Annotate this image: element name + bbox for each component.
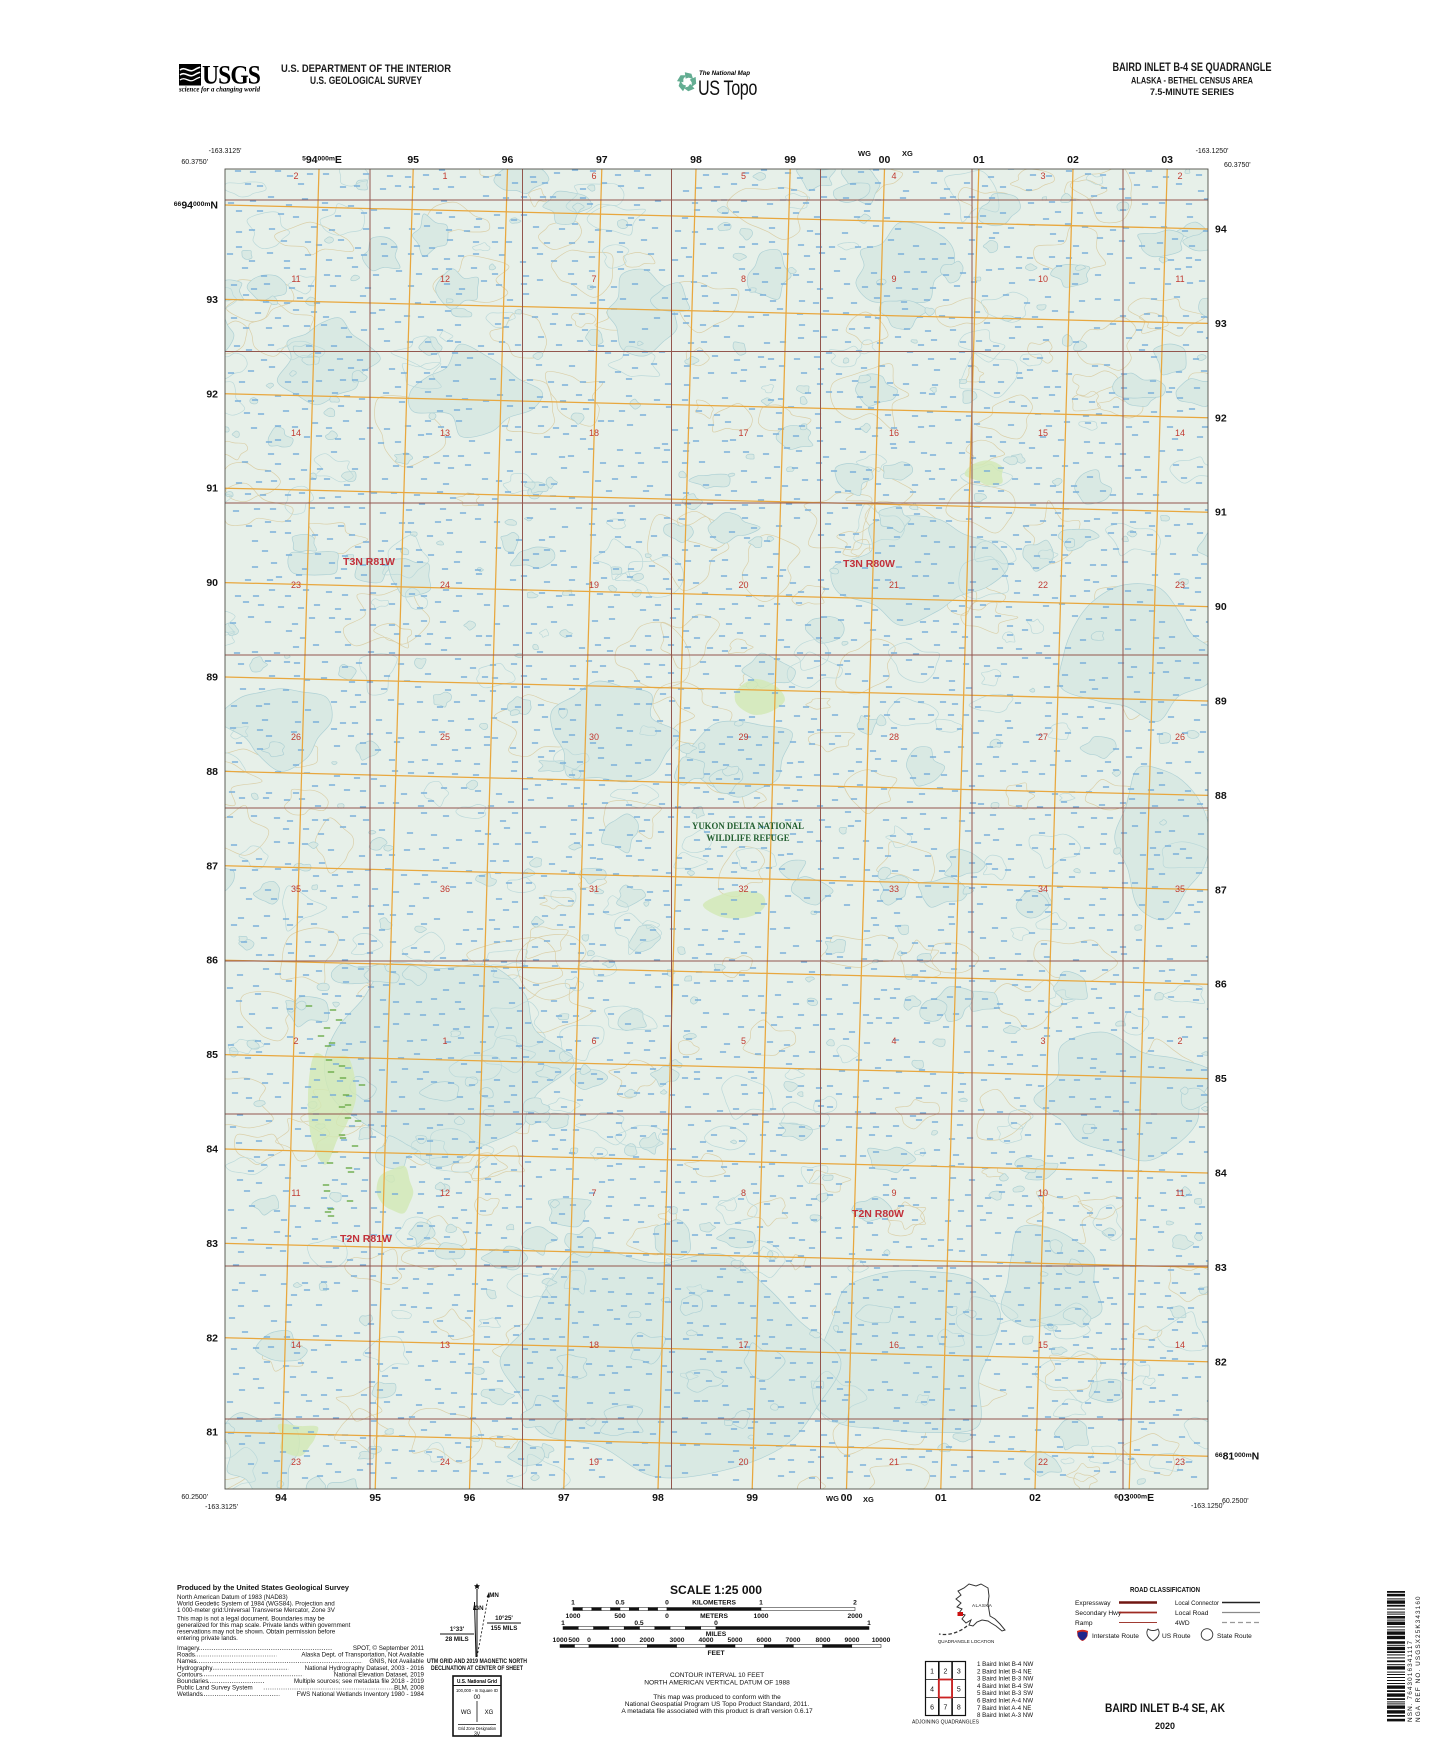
svg-text:XG: XG — [485, 1710, 494, 1716]
svg-text:16: 16 — [889, 1340, 899, 1350]
svg-text:17: 17 — [738, 1340, 748, 1350]
svg-text:31: 31 — [589, 884, 599, 894]
svg-text:36: 36 — [440, 884, 450, 894]
svg-text:97: 97 — [558, 1492, 570, 1504]
svg-text:23: 23 — [1175, 580, 1185, 590]
svg-text:15: 15 — [1038, 1340, 1048, 1350]
svg-text:1 000-meter grid:Universal Tra: 1 000-meter grid:Universal Transverse Me… — [177, 1607, 336, 1614]
svg-text:93: 93 — [1215, 318, 1227, 330]
svg-text:96: 96 — [464, 1492, 476, 1504]
svg-text:90: 90 — [1215, 601, 1227, 613]
svg-text:ROAD CLASSIFICATION: ROAD CLASSIFICATION — [1130, 1585, 1200, 1594]
svg-text:20: 20 — [738, 1457, 748, 1467]
svg-text:2: 2 — [293, 1036, 298, 1046]
svg-text:88: 88 — [206, 766, 218, 778]
svg-text:4: 4 — [891, 171, 896, 181]
svg-text:3V: 3V — [474, 1732, 481, 1738]
svg-text:WG: WG — [826, 1494, 839, 1503]
svg-text:2: 2 — [1177, 171, 1182, 181]
svg-text:81: 81 — [206, 1427, 218, 1439]
svg-text:6: 6 — [930, 1705, 934, 1712]
svg-text:ALASKA - BETHEL CENSUS AREA: ALASKA - BETHEL CENSUS AREA — [1131, 76, 1254, 86]
svg-text:6: 6 — [591, 1036, 596, 1046]
svg-text:98: 98 — [652, 1492, 664, 1504]
svg-text:97: 97 — [596, 154, 608, 166]
svg-text:16: 16 — [889, 428, 899, 438]
svg-text:-163.1250': -163.1250' — [1196, 148, 1229, 155]
svg-text:US Route: US Route — [1162, 1633, 1191, 1640]
svg-text:0: 0 — [587, 1637, 591, 1644]
svg-text:8 Baird Inlet A-3 NW: 8 Baird Inlet A-3 NW — [977, 1712, 1033, 1719]
svg-text:2000: 2000 — [640, 1637, 655, 1644]
svg-text:85: 85 — [1215, 1073, 1227, 1085]
svg-text:500: 500 — [568, 1637, 579, 1644]
svg-text:7000: 7000 — [786, 1637, 801, 1644]
svg-text:15: 15 — [1038, 428, 1048, 438]
svg-text:Secondary Hwy: Secondary Hwy — [1075, 1610, 1122, 1617]
svg-text:2020: 2020 — [1155, 1721, 1175, 1731]
svg-text:13: 13 — [440, 1340, 450, 1350]
svg-text:95: 95 — [407, 154, 419, 166]
svg-text:DECLINATION AT CENTER OF SHEET: DECLINATION AT CENTER OF SHEET — [431, 1665, 523, 1672]
svg-text:14: 14 — [291, 1340, 301, 1350]
svg-text:100,000 - m Square ID: 100,000 - m Square ID — [456, 1688, 498, 1694]
svg-text:98: 98 — [690, 154, 702, 166]
svg-text:19: 19 — [589, 580, 599, 590]
svg-text:14: 14 — [291, 428, 301, 438]
svg-text:1: 1 — [561, 1620, 565, 1627]
svg-text:00: 00 — [474, 1695, 481, 1701]
svg-text:YUKON DELTA NATIONAL: YUKON DELTA NATIONAL — [692, 822, 804, 832]
svg-text:6: 6 — [591, 171, 596, 181]
svg-text:91: 91 — [206, 483, 218, 495]
svg-text:84: 84 — [206, 1144, 218, 1156]
svg-text:82: 82 — [1215, 1356, 1227, 1368]
svg-text:34: 34 — [1038, 884, 1048, 894]
svg-text:2: 2 — [1177, 1036, 1182, 1046]
svg-text:03: 03 — [1161, 154, 1173, 166]
svg-text:01: 01 — [973, 154, 985, 166]
svg-text:8: 8 — [741, 1188, 746, 1198]
svg-text:-163.3125': -163.3125' — [205, 1504, 238, 1511]
svg-text:26: 26 — [291, 732, 301, 742]
svg-text:7.5-MINUTE SERIES: 7.5-MINUTE SERIES — [1150, 87, 1234, 97]
svg-text:9000: 9000 — [845, 1637, 860, 1644]
svg-text:WG: WG — [461, 1710, 472, 1716]
svg-text:8: 8 — [957, 1705, 961, 1712]
svg-text:12: 12 — [440, 274, 450, 284]
svg-text:13: 13 — [440, 428, 450, 438]
svg-text:5: 5 — [741, 1036, 746, 1046]
svg-text:0: 0 — [665, 1613, 669, 1620]
svg-text:WG: WG — [858, 149, 871, 158]
svg-text:14: 14 — [1175, 1340, 1185, 1350]
svg-text:23: 23 — [1175, 1457, 1185, 1467]
svg-text:11: 11 — [291, 274, 300, 284]
svg-text:Local Road: Local Road — [1175, 1610, 1209, 1617]
svg-text:T2N R80W: T2N R80W — [852, 1208, 904, 1220]
svg-text:84: 84 — [1215, 1168, 1227, 1180]
svg-text:WILDLIFE REFUGE: WILDLIFE REFUGE — [707, 834, 790, 844]
svg-text:7: 7 — [591, 274, 596, 284]
svg-text:ALASKA: ALASKA — [972, 1603, 993, 1608]
svg-text:8000: 8000 — [816, 1637, 831, 1644]
svg-text:1: 1 — [442, 1036, 447, 1046]
svg-text:93: 93 — [206, 294, 218, 306]
svg-text:10000: 10000 — [872, 1637, 891, 1644]
svg-text:Interstate Route: Interstate Route — [1092, 1633, 1139, 1640]
svg-text:4: 4 — [891, 1036, 896, 1046]
svg-text:ADJOINING QUADRANGLES: ADJOINING QUADRANGLES — [912, 1720, 980, 1726]
svg-text:1000: 1000 — [611, 1637, 626, 1644]
svg-text:FWS National Wetlands Inven: FWS National Wetlands Inventory 1980 - 1… — [297, 1691, 425, 1698]
svg-text:99: 99 — [784, 154, 796, 166]
svg-text:-163.3125': -163.3125' — [209, 148, 242, 155]
svg-text:U.S. GEOLOGICAL SURVEY: U.S. GEOLOGICAL SURVEY — [310, 75, 423, 87]
svg-text:88: 88 — [1215, 790, 1227, 802]
svg-text:US Topo: US Topo — [698, 76, 757, 100]
svg-text:3: 3 — [1040, 1036, 1045, 1046]
svg-text:entering private lands.: entering private lands. — [177, 1635, 238, 1642]
svg-text:87: 87 — [206, 860, 218, 872]
svg-text:BAIRD INLET B-4 SE QUADRANGLE: BAIRD INLET B-4 SE QUADRANGLE — [1113, 62, 1272, 74]
svg-text:94: 94 — [275, 1492, 287, 1504]
svg-text:5000: 5000 — [728, 1637, 743, 1644]
svg-text:T3N R80W: T3N R80W — [843, 558, 895, 570]
svg-text:86: 86 — [1215, 979, 1227, 991]
svg-text:3000: 3000 — [670, 1637, 685, 1644]
svg-text:2: 2 — [293, 171, 298, 181]
svg-text:82: 82 — [206, 1332, 218, 1344]
svg-text:95: 95 — [369, 1492, 381, 1504]
svg-text:35: 35 — [291, 884, 301, 894]
svg-text:83: 83 — [1215, 1262, 1227, 1274]
svg-text:State Route: State Route — [1217, 1633, 1252, 1640]
svg-text:6 Baird Inlet A-4 NW: 6 Baird Inlet A-4 NW — [977, 1698, 1033, 1705]
svg-text:4000: 4000 — [699, 1637, 714, 1644]
svg-text:2 Baird Inlet B-4 NE: 2 Baird Inlet B-4 NE — [977, 1668, 1032, 1675]
svg-text:26: 26 — [1175, 732, 1185, 742]
svg-text:XG: XG — [863, 1495, 874, 1504]
svg-text:0: 0 — [714, 1620, 718, 1627]
svg-text:60.2500': 60.2500' — [181, 1494, 208, 1501]
svg-text:02: 02 — [1029, 1492, 1041, 1504]
svg-text:0: 0 — [665, 1600, 669, 1607]
svg-text:60.2500': 60.2500' — [1222, 1498, 1249, 1505]
svg-text:Ramp: Ramp — [1075, 1620, 1093, 1627]
svg-text:10: 10 — [1038, 274, 1048, 284]
svg-text:11: 11 — [291, 1188, 300, 1198]
svg-text:MN: MN — [489, 1592, 499, 1599]
svg-text:8: 8 — [741, 274, 746, 284]
svg-text:Local Connector: Local Connector — [1175, 1600, 1220, 1607]
svg-text:19: 19 — [589, 1457, 599, 1467]
svg-text:Grid Zone Designation: Grid Zone Designation — [458, 1726, 496, 1731]
svg-text:Produced by the United States: Produced by the United States Geological… — [177, 1583, 350, 1592]
svg-text:1000: 1000 — [553, 1637, 568, 1644]
svg-text:5: 5 — [741, 171, 746, 181]
svg-text:9: 9 — [891, 274, 896, 284]
svg-text:33: 33 — [889, 884, 899, 894]
svg-text:12: 12 — [440, 1188, 450, 1198]
svg-text:96: 96 — [502, 154, 514, 166]
svg-text:T3N R81W: T3N R81W — [343, 556, 395, 568]
svg-text:U.S. DEPARTMENT OF THE INTERIO: U.S. DEPARTMENT OF THE INTERIOR — [281, 63, 451, 75]
svg-text:This map was produced to confo: This map was produced to conform with th… — [653, 1694, 781, 1701]
svg-text:85: 85 — [206, 1049, 218, 1061]
svg-text:35: 35 — [1175, 884, 1185, 894]
svg-text:1: 1 — [930, 1669, 934, 1676]
svg-text:-163.1250': -163.1250' — [1191, 1503, 1224, 1510]
svg-text:T2N R81W: T2N R81W — [340, 1233, 392, 1245]
svg-text:5: 5 — [957, 1687, 961, 1694]
svg-text:14: 14 — [1175, 428, 1185, 438]
svg-text:CONTOUR INTERVAL 10 FEET: CONTOUR INTERVAL 10 FEET — [670, 1672, 764, 1679]
svg-text:7: 7 — [591, 1188, 596, 1198]
svg-text:22: 22 — [1038, 1457, 1048, 1467]
svg-text:6000: 6000 — [757, 1637, 772, 1644]
svg-text:23: 23 — [291, 1457, 301, 1467]
svg-text:3 Baird Inlet B-3 NW: 3 Baird Inlet B-3 NW — [977, 1676, 1034, 1683]
svg-text:9: 9 — [891, 1188, 896, 1198]
svg-text:U.S. National Grid: U.S. National Grid — [457, 1679, 497, 1685]
svg-text:27: 27 — [1038, 732, 1048, 742]
svg-text:60.3750': 60.3750' — [181, 159, 208, 166]
svg-text:10: 10 — [1038, 1188, 1048, 1198]
svg-text:23: 23 — [291, 580, 301, 590]
svg-text:METERS: METERS — [700, 1613, 728, 1620]
svg-text:7 Baird Inlet A-4 NE: 7 Baird Inlet A-4 NE — [977, 1705, 1031, 1712]
svg-text:11: 11 — [1175, 1188, 1184, 1198]
svg-text:1: 1 — [442, 171, 447, 181]
svg-text:FEET: FEET — [707, 1650, 725, 1657]
svg-text:4: 4 — [930, 1687, 934, 1694]
svg-text:Expressway: Expressway — [1075, 1600, 1111, 1607]
svg-text:32: 32 — [738, 884, 748, 894]
svg-text:92: 92 — [206, 388, 218, 400]
svg-text:1 Baird Inlet B-4 NW: 1 Baird Inlet B-4 NW — [977, 1661, 1034, 1668]
svg-text:UTM GRID AND 2019 MAGNETIC NOR: UTM GRID AND 2019 MAGNETIC NORTH — [427, 1658, 527, 1665]
svg-text:1000: 1000 — [566, 1613, 581, 1620]
svg-text:24: 24 — [440, 580, 450, 590]
svg-text:1: 1 — [571, 1600, 575, 1607]
svg-text:500: 500 — [614, 1613, 625, 1620]
svg-text:22: 22 — [1038, 580, 1048, 590]
svg-text:3: 3 — [1040, 171, 1045, 181]
svg-text:92: 92 — [1215, 412, 1227, 424]
svg-text:5 Baird Inlet B-3 SW: 5 Baird Inlet B-3 SW — [977, 1690, 1033, 1697]
svg-text:00: 00 — [841, 1492, 853, 1504]
svg-text:00: 00 — [879, 154, 891, 166]
svg-text:1: 1 — [867, 1620, 871, 1627]
svg-text:A metadata file associated wit: A metadata file associated with this pro… — [621, 1708, 813, 1715]
svg-text:29: 29 — [738, 732, 748, 742]
svg-text:99: 99 — [746, 1492, 758, 1504]
svg-text:86: 86 — [206, 955, 218, 967]
svg-text:83: 83 — [206, 1238, 218, 1250]
svg-text:KILOMETERS: KILOMETERS — [692, 1600, 736, 1607]
svg-text:1°33': 1°33' — [450, 1626, 465, 1633]
svg-text:28: 28 — [889, 732, 899, 742]
svg-text:94: 94 — [1215, 224, 1227, 236]
svg-text:10°25': 10°25' — [495, 1615, 513, 1622]
svg-text:NGA REF NO. USGSX25K343160: NGA REF NO. USGSX25K343160 — [1415, 1595, 1422, 1722]
svg-text:1: 1 — [759, 1600, 763, 1607]
svg-text:90: 90 — [206, 577, 218, 589]
svg-text:NORTH AMERICAN VERTICAL DATUM: NORTH AMERICAN VERTICAL DATUM OF 1988 — [644, 1680, 790, 1687]
svg-text:4 Baird Inlet B-4 SW: 4 Baird Inlet B-4 SW — [977, 1683, 1033, 1690]
svg-text:91: 91 — [1215, 507, 1227, 519]
svg-text:SCALE 1:25 000: SCALE 1:25 000 — [670, 1583, 762, 1597]
svg-text:0.5: 0.5 — [634, 1620, 644, 1627]
svg-text:21: 21 — [889, 1457, 899, 1467]
svg-text:25: 25 — [440, 732, 450, 742]
svg-text:GN: GN — [474, 1605, 484, 1612]
svg-text:89: 89 — [206, 672, 218, 684]
svg-text:30: 30 — [589, 732, 599, 742]
svg-text:18: 18 — [589, 428, 599, 438]
svg-text:BAIRD INLET B-4 SE, AK: BAIRD INLET B-4 SE, AK — [1105, 1703, 1226, 1715]
svg-text:3: 3 — [957, 1669, 961, 1676]
svg-text:02: 02 — [1067, 154, 1079, 166]
svg-text:87: 87 — [1215, 884, 1227, 896]
svg-text:24: 24 — [440, 1457, 450, 1467]
svg-text:1000: 1000 — [754, 1613, 769, 1620]
svg-text:NSN. 7643016341117: NSN. 7643016341117 — [1407, 1640, 1414, 1722]
svg-text:17: 17 — [738, 428, 748, 438]
svg-text:01: 01 — [935, 1492, 947, 1504]
svg-text:20: 20 — [738, 580, 748, 590]
svg-text:National Geospatial Program US: National Geospatial Program US Topo Prod… — [625, 1701, 810, 1708]
svg-text:4WD: 4WD — [1175, 1620, 1190, 1627]
svg-text:2: 2 — [944, 1669, 948, 1676]
svg-text:2: 2 — [853, 1600, 857, 1607]
svg-text:89: 89 — [1215, 696, 1227, 708]
svg-text:science for a changing world: science for a changing world — [178, 86, 260, 94]
svg-text:7: 7 — [944, 1705, 948, 1712]
svg-text:11: 11 — [1175, 274, 1184, 284]
svg-text:2000: 2000 — [848, 1613, 863, 1620]
svg-text:18: 18 — [589, 1340, 599, 1350]
svg-text:60.3750': 60.3750' — [1224, 162, 1251, 169]
svg-text:XG: XG — [902, 149, 913, 158]
svg-text:21: 21 — [889, 580, 899, 590]
svg-text:155 MILS: 155 MILS — [491, 1625, 518, 1632]
svg-text:28 MILS: 28 MILS — [445, 1636, 468, 1643]
svg-text:Wetlands: Wetlands — [177, 1691, 203, 1698]
svg-text:QUADRANGLE LOCATION: QUADRANGLE LOCATION — [938, 1639, 995, 1644]
svg-text:0.5: 0.5 — [615, 1600, 625, 1607]
